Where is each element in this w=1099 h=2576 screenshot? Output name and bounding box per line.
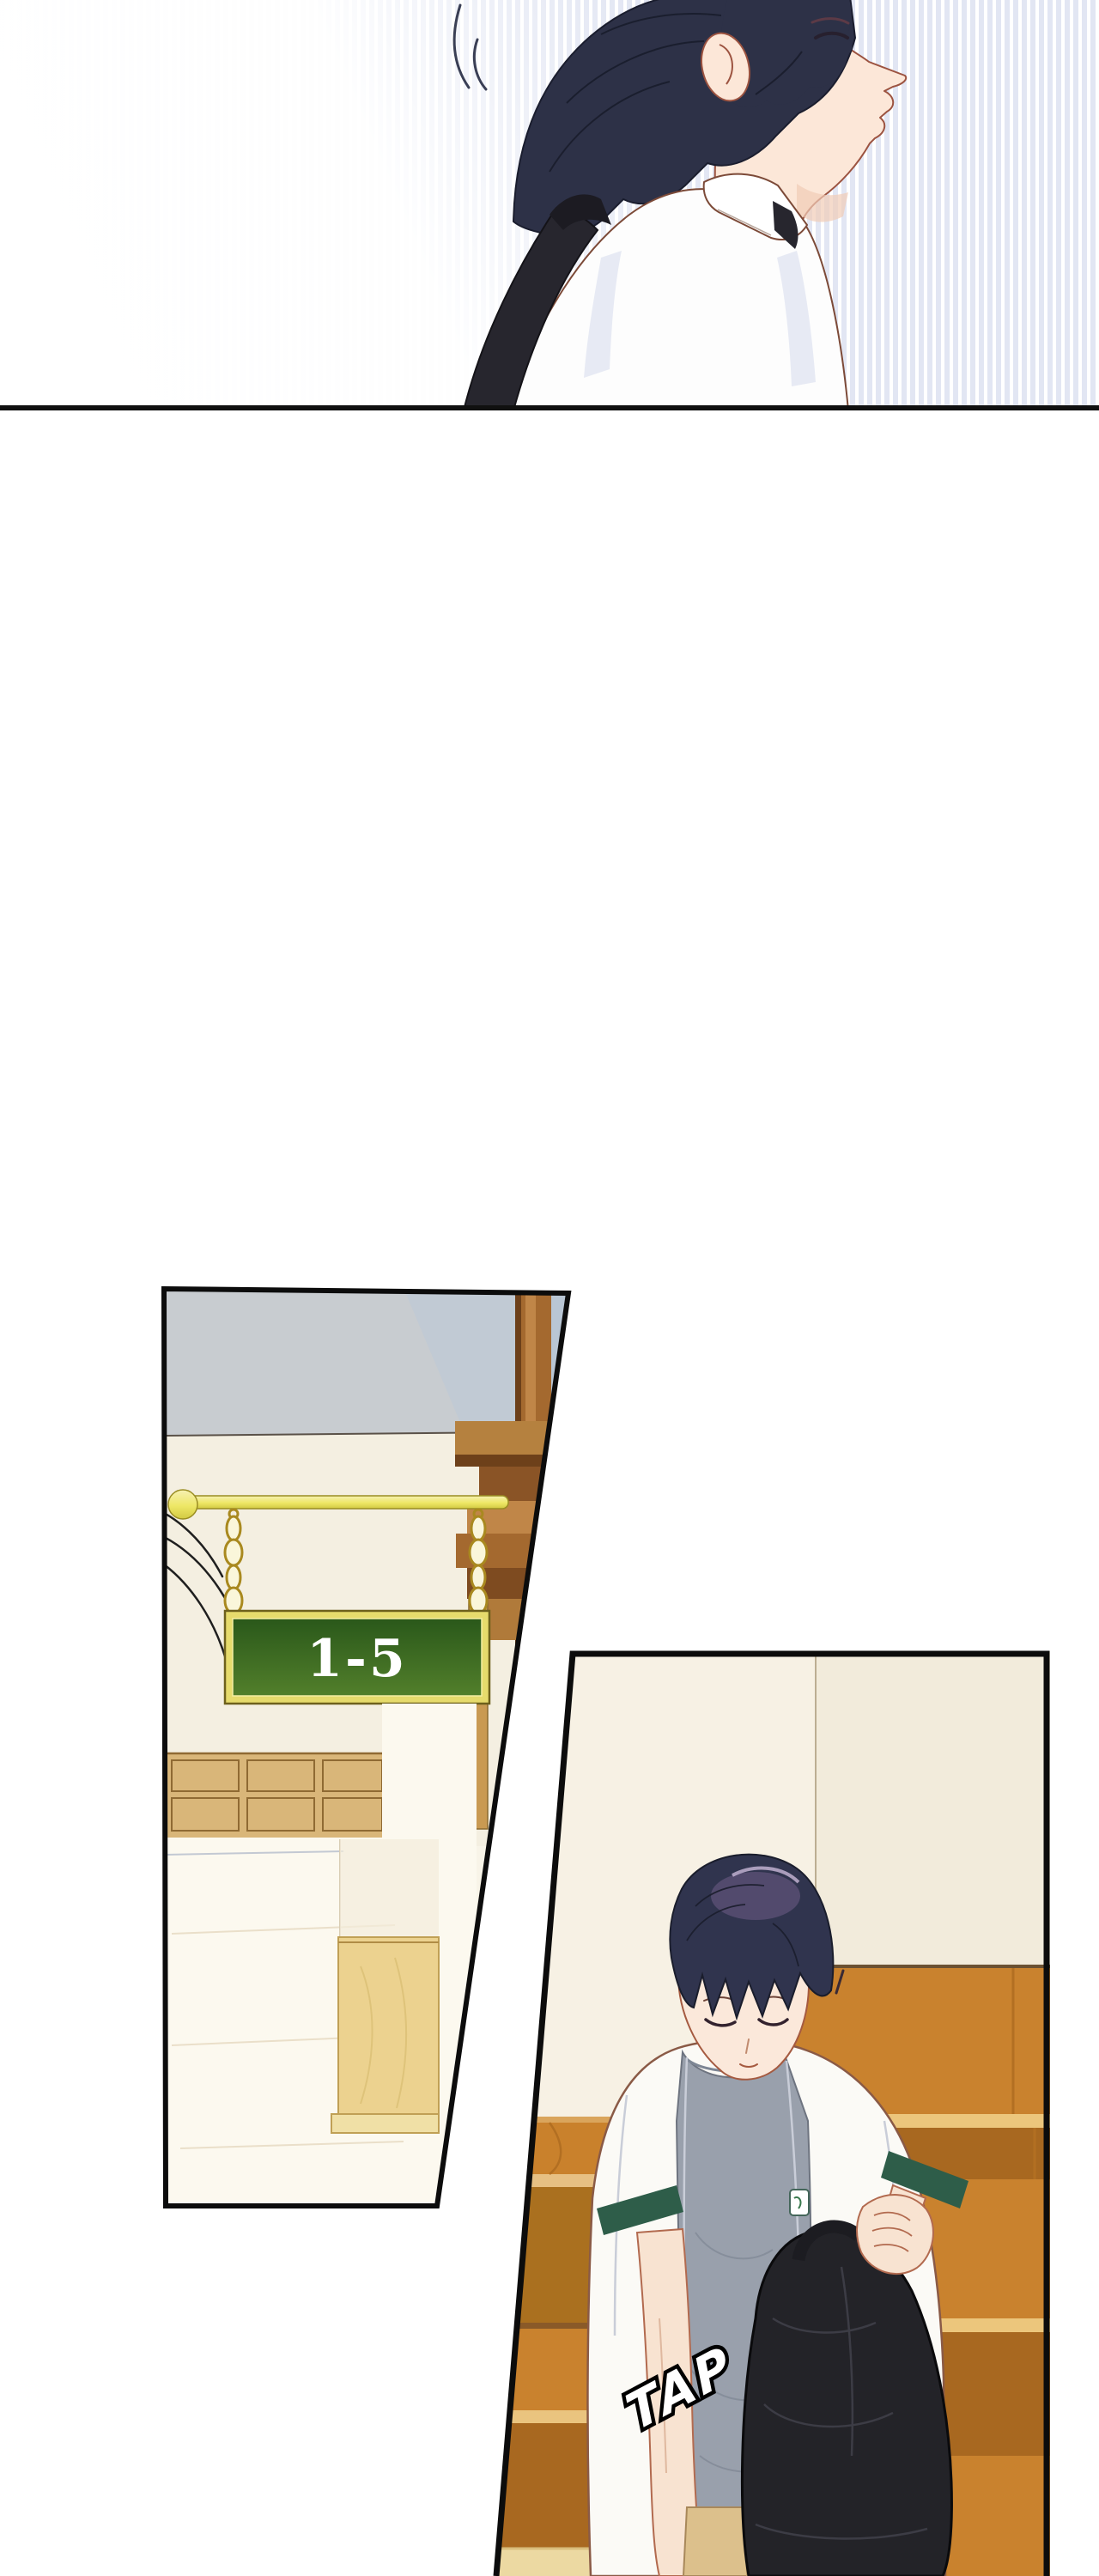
panel-top-profile: [0, 0, 1099, 410]
cabinet-base: [331, 2114, 439, 2133]
wainscot-panels: [164, 1753, 382, 1838]
rod-finial-ball: [168, 1490, 197, 1519]
chest-badge: [790, 2190, 809, 2215]
classroom-sign: 1-5: [225, 1611, 489, 1704]
wood-cabinet: [331, 1839, 439, 2133]
panel-stairs-boy: TAP: [489, 1646, 1099, 2576]
panel-bottom-border: [0, 405, 1099, 410]
sign-label: 1-5: [307, 1629, 407, 1689]
cabinet-front: [338, 1937, 439, 2114]
